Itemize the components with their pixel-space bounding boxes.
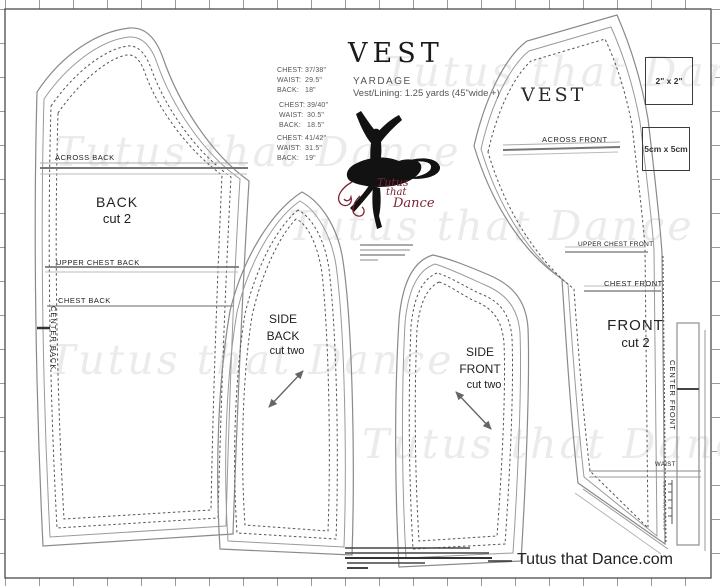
front-piece-cut: cut 2 [593, 335, 678, 350]
size-value: 30.5" [307, 111, 328, 121]
yardage-detail: Vest/Lining: 1.25 yards (45"wide +) [353, 88, 500, 99]
size-chart-1: CHEST:37/38" WAIST:29.5" BACK:18" [277, 66, 326, 96]
size-value: 41/42" [305, 134, 326, 144]
size-label: CHEST: [279, 101, 307, 111]
size-value: 37/38" [305, 66, 326, 76]
front-piece-name: FRONT [593, 317, 678, 334]
side-back-name-1: SIDE [243, 311, 323, 328]
size-label: WAIST: [279, 111, 307, 121]
piece-back-outline [35, 28, 249, 546]
front-across-label: ACROSS FRONT [542, 135, 608, 144]
front-tiny-note: Tutus that Dance [662, 481, 667, 531]
size-label: CHEST: [277, 134, 305, 144]
size-label: BACK: [277, 154, 305, 164]
back-piece-cut: cut 2 [72, 211, 162, 226]
footer-site-text: Tutus that Dance.com [517, 551, 673, 569]
yardage-heading: YARDAGE [353, 76, 412, 87]
test-square-inch: 2" x 2" [645, 57, 693, 105]
front-chest-label: CHEST FRONT [604, 279, 663, 288]
side-back-cut: cut two [247, 345, 327, 357]
front-center-label: CENTER FRONT [668, 360, 677, 431]
size-value: 18.5" [307, 121, 328, 131]
size-label: BACK: [279, 121, 307, 131]
side-front-name-1: SIDE [438, 344, 522, 361]
front-upper-chest-label: UPPER CHEST FRONT [578, 241, 653, 248]
size-label: WAIST: [277, 76, 305, 86]
grainline-arrow [456, 392, 491, 429]
size-value: 31.5" [305, 144, 326, 154]
back-upper-chest-label: UPPER CHEST BACK [56, 258, 140, 267]
dancer-logo-icon [339, 111, 440, 229]
side-back-name-2: BACK [243, 328, 323, 345]
size-chart-3: CHEST:41/42" WAIST:31.5" BACK:19" [277, 134, 326, 164]
size-label: CHEST: [277, 66, 305, 76]
logo-word-dance: Dance [393, 196, 435, 211]
back-chest-label: CHEST BACK [58, 296, 111, 305]
hem-lines [345, 548, 492, 568]
front-waist-label: WAIST [655, 462, 676, 468]
pattern-sheet: Tutus that Dance Tutus that Dance Tutus … [0, 0, 720, 586]
piece-side-back-outline [218, 192, 354, 555]
size-label: BACK: [277, 86, 305, 96]
grainline-arrow [269, 371, 303, 407]
back-center-label: CENTER BACK [49, 306, 58, 370]
back-across-label: ACROSS BACK [55, 153, 115, 162]
test-square-metric-label: 5cm x 5cm [644, 144, 687, 154]
sheet-title: VEST [348, 38, 444, 69]
front-vest-header: VEST [521, 84, 586, 106]
fine-print-lines [360, 245, 413, 260]
size-value: 18" [305, 86, 326, 96]
side-front-cut: cut two [442, 379, 526, 391]
piece-side-front-outline [396, 255, 529, 567]
size-value: 29.5" [305, 76, 326, 86]
size-value: 19" [305, 154, 326, 164]
size-label: WAIST: [277, 144, 305, 154]
button-extension-strip [677, 323, 699, 545]
side-front-name-2: FRONT [438, 361, 522, 378]
test-square-inch-label: 2" x 2" [656, 76, 683, 86]
size-value: 39/40" [307, 101, 328, 111]
lengthen-ruler [668, 480, 672, 524]
back-piece-name: BACK [72, 194, 162, 210]
size-chart-2: CHEST:39/40" WAIST:30.5" BACK:18.5" [279, 101, 328, 131]
test-square-metric: 5cm x 5cm [642, 127, 690, 171]
